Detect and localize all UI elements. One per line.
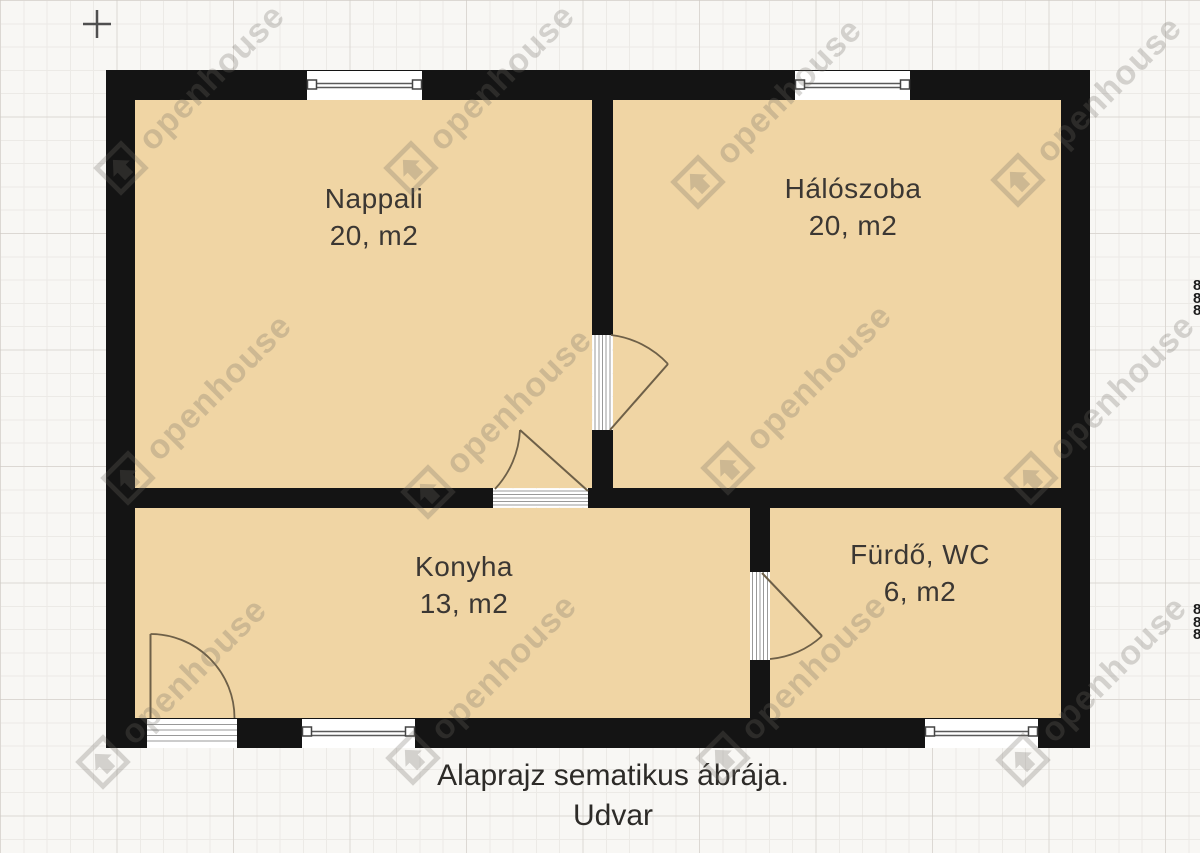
- room-label-nappali: Nappali 20, m2: [325, 180, 423, 254]
- wall-horizontal-right: [588, 488, 1061, 508]
- floor-plan-page: Nappali 20, m2 Hálószoba 20, m2 Konyha 1…: [0, 0, 1200, 853]
- floor-plan-drawing: [0, 0, 1200, 853]
- caption: Alaprajz sematikus ábrája. Udvar: [437, 756, 789, 836]
- room-name: Fürdő, WC: [850, 536, 990, 573]
- room-area: 20, m2: [785, 207, 922, 244]
- room-name: Hálószoba: [785, 170, 922, 207]
- room-name: Konyha: [415, 548, 513, 585]
- room-label-konyha: Konyha 13, m2: [415, 548, 513, 622]
- edge-fragment-top: 8 8 8: [1193, 280, 1200, 318]
- window-nappali-top: [307, 71, 422, 100]
- room-name: Nappali: [325, 180, 423, 217]
- caption-line-2: Udvar: [437, 796, 789, 836]
- wall-konyha-furdo-lower: [750, 660, 770, 718]
- room-haloszoba-floor: [613, 99, 1061, 488]
- room-area: 20, m2: [325, 217, 423, 254]
- window-konyha-bottom: [302, 719, 415, 748]
- room-nappali-floor: [135, 99, 592, 488]
- caption-line-1: Alaprajz sematikus ábrája.: [437, 756, 789, 796]
- wall-nappali-haloszoba-upper: [592, 99, 613, 335]
- room-area: 13, m2: [415, 585, 513, 622]
- window-haloszoba-top: [795, 71, 910, 100]
- edge-fragment-bottom: 8 8 8: [1193, 604, 1200, 642]
- wall-left: [106, 70, 135, 748]
- wall-horizontal-left: [135, 488, 493, 508]
- wall-top: [106, 70, 1090, 100]
- room-label-furdo: Fürdő, WC 6, m2: [850, 536, 990, 610]
- room-label-haloszoba: Hálószoba 20, m2: [785, 170, 922, 244]
- crosshair-icon: [83, 10, 111, 38]
- wall-right: [1061, 70, 1090, 748]
- window-furdo-bottom: [925, 719, 1038, 748]
- room-area: 6, m2: [850, 573, 990, 610]
- wall-konyha-furdo-upper: [750, 508, 770, 572]
